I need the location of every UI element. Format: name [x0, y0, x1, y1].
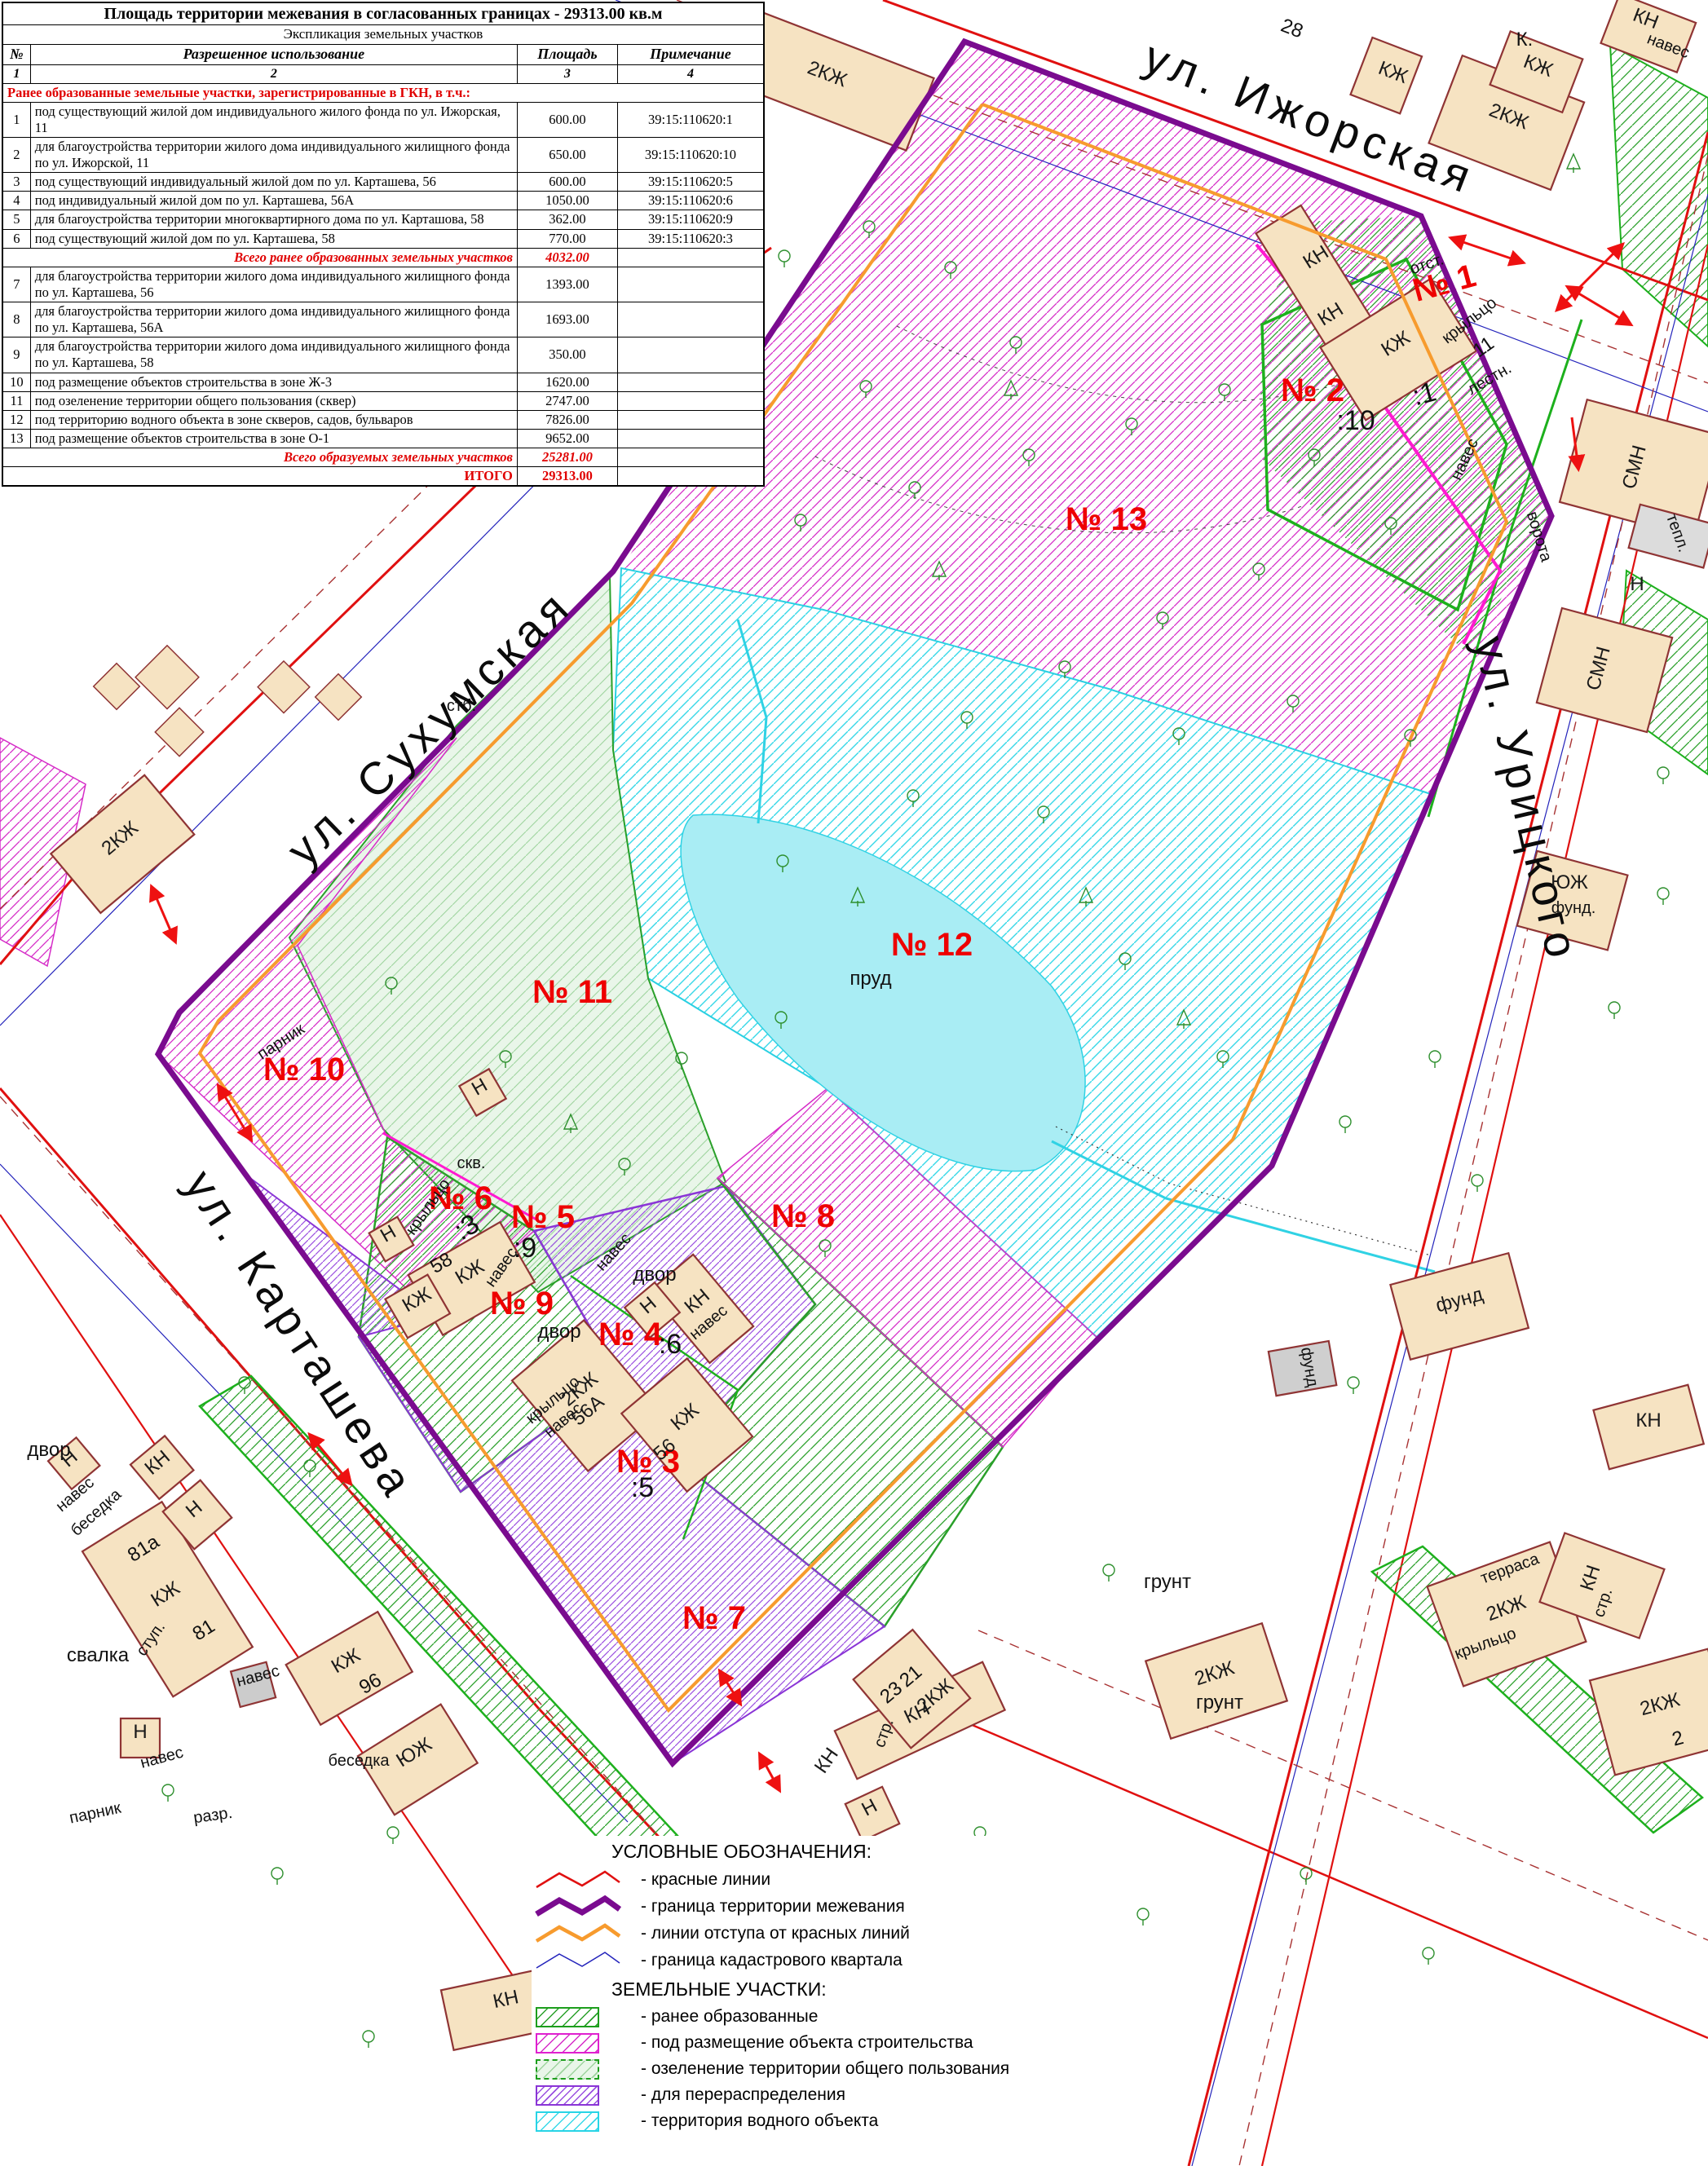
- legend-item-label: - граница кадастрового квартала: [641, 1951, 903, 1970]
- map-label: Н: [133, 1721, 147, 1743]
- previously-formed-patch: [536, 2007, 599, 2027]
- legend-item: - под размещение объекта строительства: [532, 2030, 1102, 2056]
- tree-icon: [1348, 1377, 1359, 1394]
- map-label: разр.: [192, 1804, 233, 1827]
- legend-item: - граница кадастрового квартала: [532, 1947, 1102, 1974]
- map-label: К.: [1516, 29, 1534, 51]
- table-row: 10под размещение объектов строительства …: [2, 373, 764, 391]
- legend-item-label: - красные линии: [641, 1870, 770, 1890]
- legend-item: - красные линии: [532, 1866, 1102, 1893]
- legend-item: - для перераспределения: [532, 2082, 1102, 2108]
- legend-item-label: - для перераспределения: [641, 2085, 845, 2105]
- legend-item: - озеленение территории общего пользован…: [532, 2056, 1102, 2082]
- explication-table: Площадь территории межевания в согласова…: [2, 2, 765, 487]
- col-header-note: Примечание: [617, 45, 764, 65]
- zone-label-11: № 11: [532, 974, 612, 1010]
- tree-icon: [387, 1827, 399, 1844]
- legend-item-label: - озеленение территории общего пользован…: [641, 2059, 1009, 2079]
- tree-icon: [162, 1784, 174, 1802]
- table-row: Ранее образованные земельные участки, за…: [2, 83, 764, 102]
- tree-icon: [1103, 1564, 1114, 1581]
- tree-icon: [1300, 1868, 1312, 1885]
- zone-label-10: № 10: [263, 1052, 345, 1087]
- legend-item-label: - линии отступа от красных линий: [641, 1924, 910, 1943]
- col-header-use: Разрешенное использование: [30, 45, 517, 65]
- zone-label-13: № 13: [1066, 501, 1147, 537]
- tree-icon: [779, 250, 790, 267]
- explication-table-grid: Площадь территории межевания в согласова…: [2, 2, 765, 487]
- survey-boundary-symbol: [532, 1894, 623, 1920]
- table-row: 6под существующий жилой дом по ул. Карта…: [2, 229, 764, 248]
- table-row: Всего ранее образованных земельных участ…: [2, 248, 764, 267]
- red-lines-symbol: [532, 1867, 623, 1893]
- table-row: ИТОГО29313.00: [2, 467, 764, 487]
- legend-item-label: - территория водного объекта: [641, 2111, 878, 2131]
- setback-lines-symbol: [532, 1921, 623, 1947]
- legend-line-items: - красные линии- граница территории меже…: [532, 1866, 1102, 1974]
- table-row: 3под существующий индивидуальный жилой д…: [2, 173, 764, 192]
- table-row: 9для благоустройства территории жилого д…: [2, 337, 764, 373]
- tree-icon: [1339, 1116, 1351, 1133]
- legend-item: - территория водного объекта: [532, 2108, 1102, 2134]
- ne-parcel-hatch: [1610, 45, 1708, 346]
- tree-icon: [1609, 1002, 1620, 1019]
- map-legend: УСЛОВНЫЕ ОБОЗНАЧЕНИЯ: - красные линии- г…: [532, 1836, 1102, 2134]
- map-label: двор: [633, 1264, 676, 1286]
- zone-label-4: № 4: [598, 1317, 663, 1352]
- table-body: Ранее образованные земельные участки, за…: [2, 83, 764, 486]
- map-label: беседка: [328, 1752, 390, 1770]
- tree-icon: [1657, 767, 1669, 784]
- map-label: свалка: [67, 1644, 130, 1666]
- tree-icon: [271, 1868, 283, 1885]
- map-label: грунт: [1144, 1571, 1191, 1593]
- zone-label-7: № 7: [682, 1600, 746, 1636]
- zone-label-12: № 12: [891, 927, 973, 963]
- table-row: 5для благоустройства территории многоква…: [2, 210, 764, 229]
- conifer-icon: [1567, 154, 1580, 173]
- pond-label: пруд: [850, 968, 891, 990]
- zone-label-9: № 9: [490, 1286, 554, 1321]
- map-label: грунт: [1196, 1692, 1243, 1714]
- public-greening-patch: [536, 2059, 599, 2080]
- zone-label-5: № 5: [511, 1199, 575, 1235]
- map-label: Н: [1630, 573, 1644, 595]
- legend-item-label: - ранее образованные: [641, 2007, 818, 2027]
- map-label: скв.: [457, 1154, 486, 1172]
- table-row: 4под индивидуальный жилой дом по ул. Кар…: [2, 192, 764, 210]
- plan-sheet: ул. Ижорскаяул. Урицкогоул. Сухумскаяул.…: [0, 0, 1708, 2166]
- tree-icon: [1472, 1175, 1483, 1192]
- map-label: фунд.: [1551, 899, 1596, 917]
- table-subtitle: Экспликация земельных участков: [2, 25, 764, 45]
- legend-item: - граница территории межевания: [532, 1893, 1102, 1920]
- tree-icon: [1137, 1908, 1149, 1926]
- legend-item: - линии отступа от красных линий: [532, 1920, 1102, 1947]
- legend-patch-items: - ранее образованные- под размещение объ…: [532, 2004, 1102, 2134]
- legend-item-label: - граница территории межевания: [641, 1897, 905, 1917]
- col-header-area: Площадь: [517, 45, 617, 65]
- zone-label-8: № 8: [771, 1198, 835, 1234]
- tree-icon: [1657, 888, 1669, 905]
- legend-title: УСЛОВНЫЕ ОБОЗНАЧЕНИЯ:: [611, 1841, 1102, 1863]
- legend-subtitle: ЗЕМЕЛЬНЫЕ УЧАСТКИ:: [611, 1979, 1102, 2001]
- tree-icon: [1429, 1051, 1441, 1068]
- table-row: 8для благоустройства территории жилого д…: [2, 302, 764, 337]
- map-label: :10: [1336, 405, 1375, 436]
- table-row: 7для благоустройства территории жилого д…: [2, 267, 764, 302]
- cadastral-quarter-symbol: [532, 1948, 623, 1974]
- table-row: Всего образуемых земельных участков25281…: [2, 448, 764, 467]
- map-label: двор: [537, 1321, 580, 1343]
- map-label: :5: [631, 1472, 654, 1503]
- tree-icon: [1423, 1948, 1434, 1965]
- col-header-num: №: [2, 45, 30, 65]
- table-row: 11под озеленение территории общего польз…: [2, 391, 764, 410]
- table-title: Площадь территории межевания в согласова…: [2, 2, 764, 25]
- zone-label-2: № 2: [1281, 373, 1344, 408]
- map-label: КН: [810, 1744, 843, 1777]
- map-label: 28: [1278, 15, 1306, 43]
- table-row: 1под существующий жилой дом индивидуальн…: [2, 102, 764, 137]
- map-label: :6: [659, 1329, 682, 1360]
- map-label: ЮЖ: [1551, 871, 1588, 893]
- table-row: 13под размещение объектов строительства …: [2, 429, 764, 448]
- table-row: 12под территорию водного объекта в зоне …: [2, 410, 764, 429]
- table-row: 2для благоустройства территории жилого д…: [2, 137, 764, 172]
- legend-item: - ранее образованные: [532, 2004, 1102, 2030]
- water-object-patch: [536, 2111, 599, 2132]
- legend-item-label: - под размещение объекта строительства: [641, 2033, 973, 2053]
- map-label: КН: [1635, 1409, 1661, 1432]
- map-label: парник: [68, 1799, 122, 1828]
- map-label: стб.: [447, 697, 476, 715]
- construction-object-patch: [536, 2033, 599, 2054]
- tree-icon: [363, 2031, 374, 2048]
- redistribution-patch: [536, 2085, 599, 2106]
